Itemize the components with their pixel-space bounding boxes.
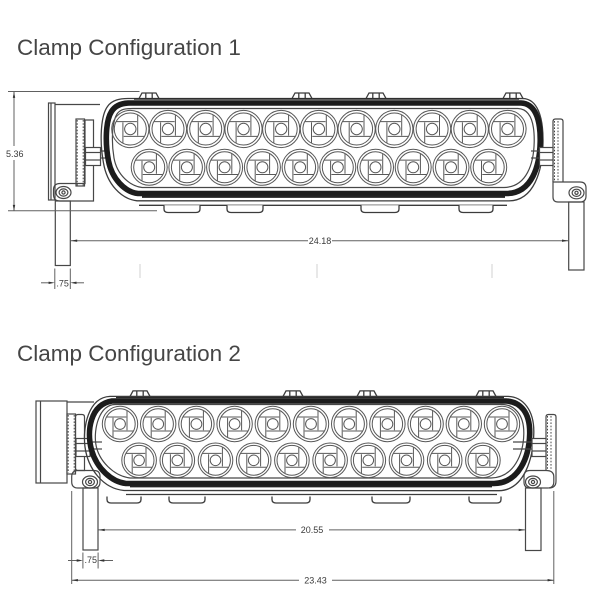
svg-text:24.18: 24.18 [309,236,332,246]
svg-text:20.55: 20.55 [301,525,324,535]
svg-text:.75: .75 [85,555,98,565]
svg-text:23.43: 23.43 [304,575,327,585]
svg-text:5.36: 5.36 [6,149,24,159]
svg-text:Clamp Configuration 1: Clamp Configuration 1 [17,35,241,60]
svg-text:.75: .75 [56,279,69,289]
svg-text:Clamp Configuration 2: Clamp Configuration 2 [17,341,241,366]
